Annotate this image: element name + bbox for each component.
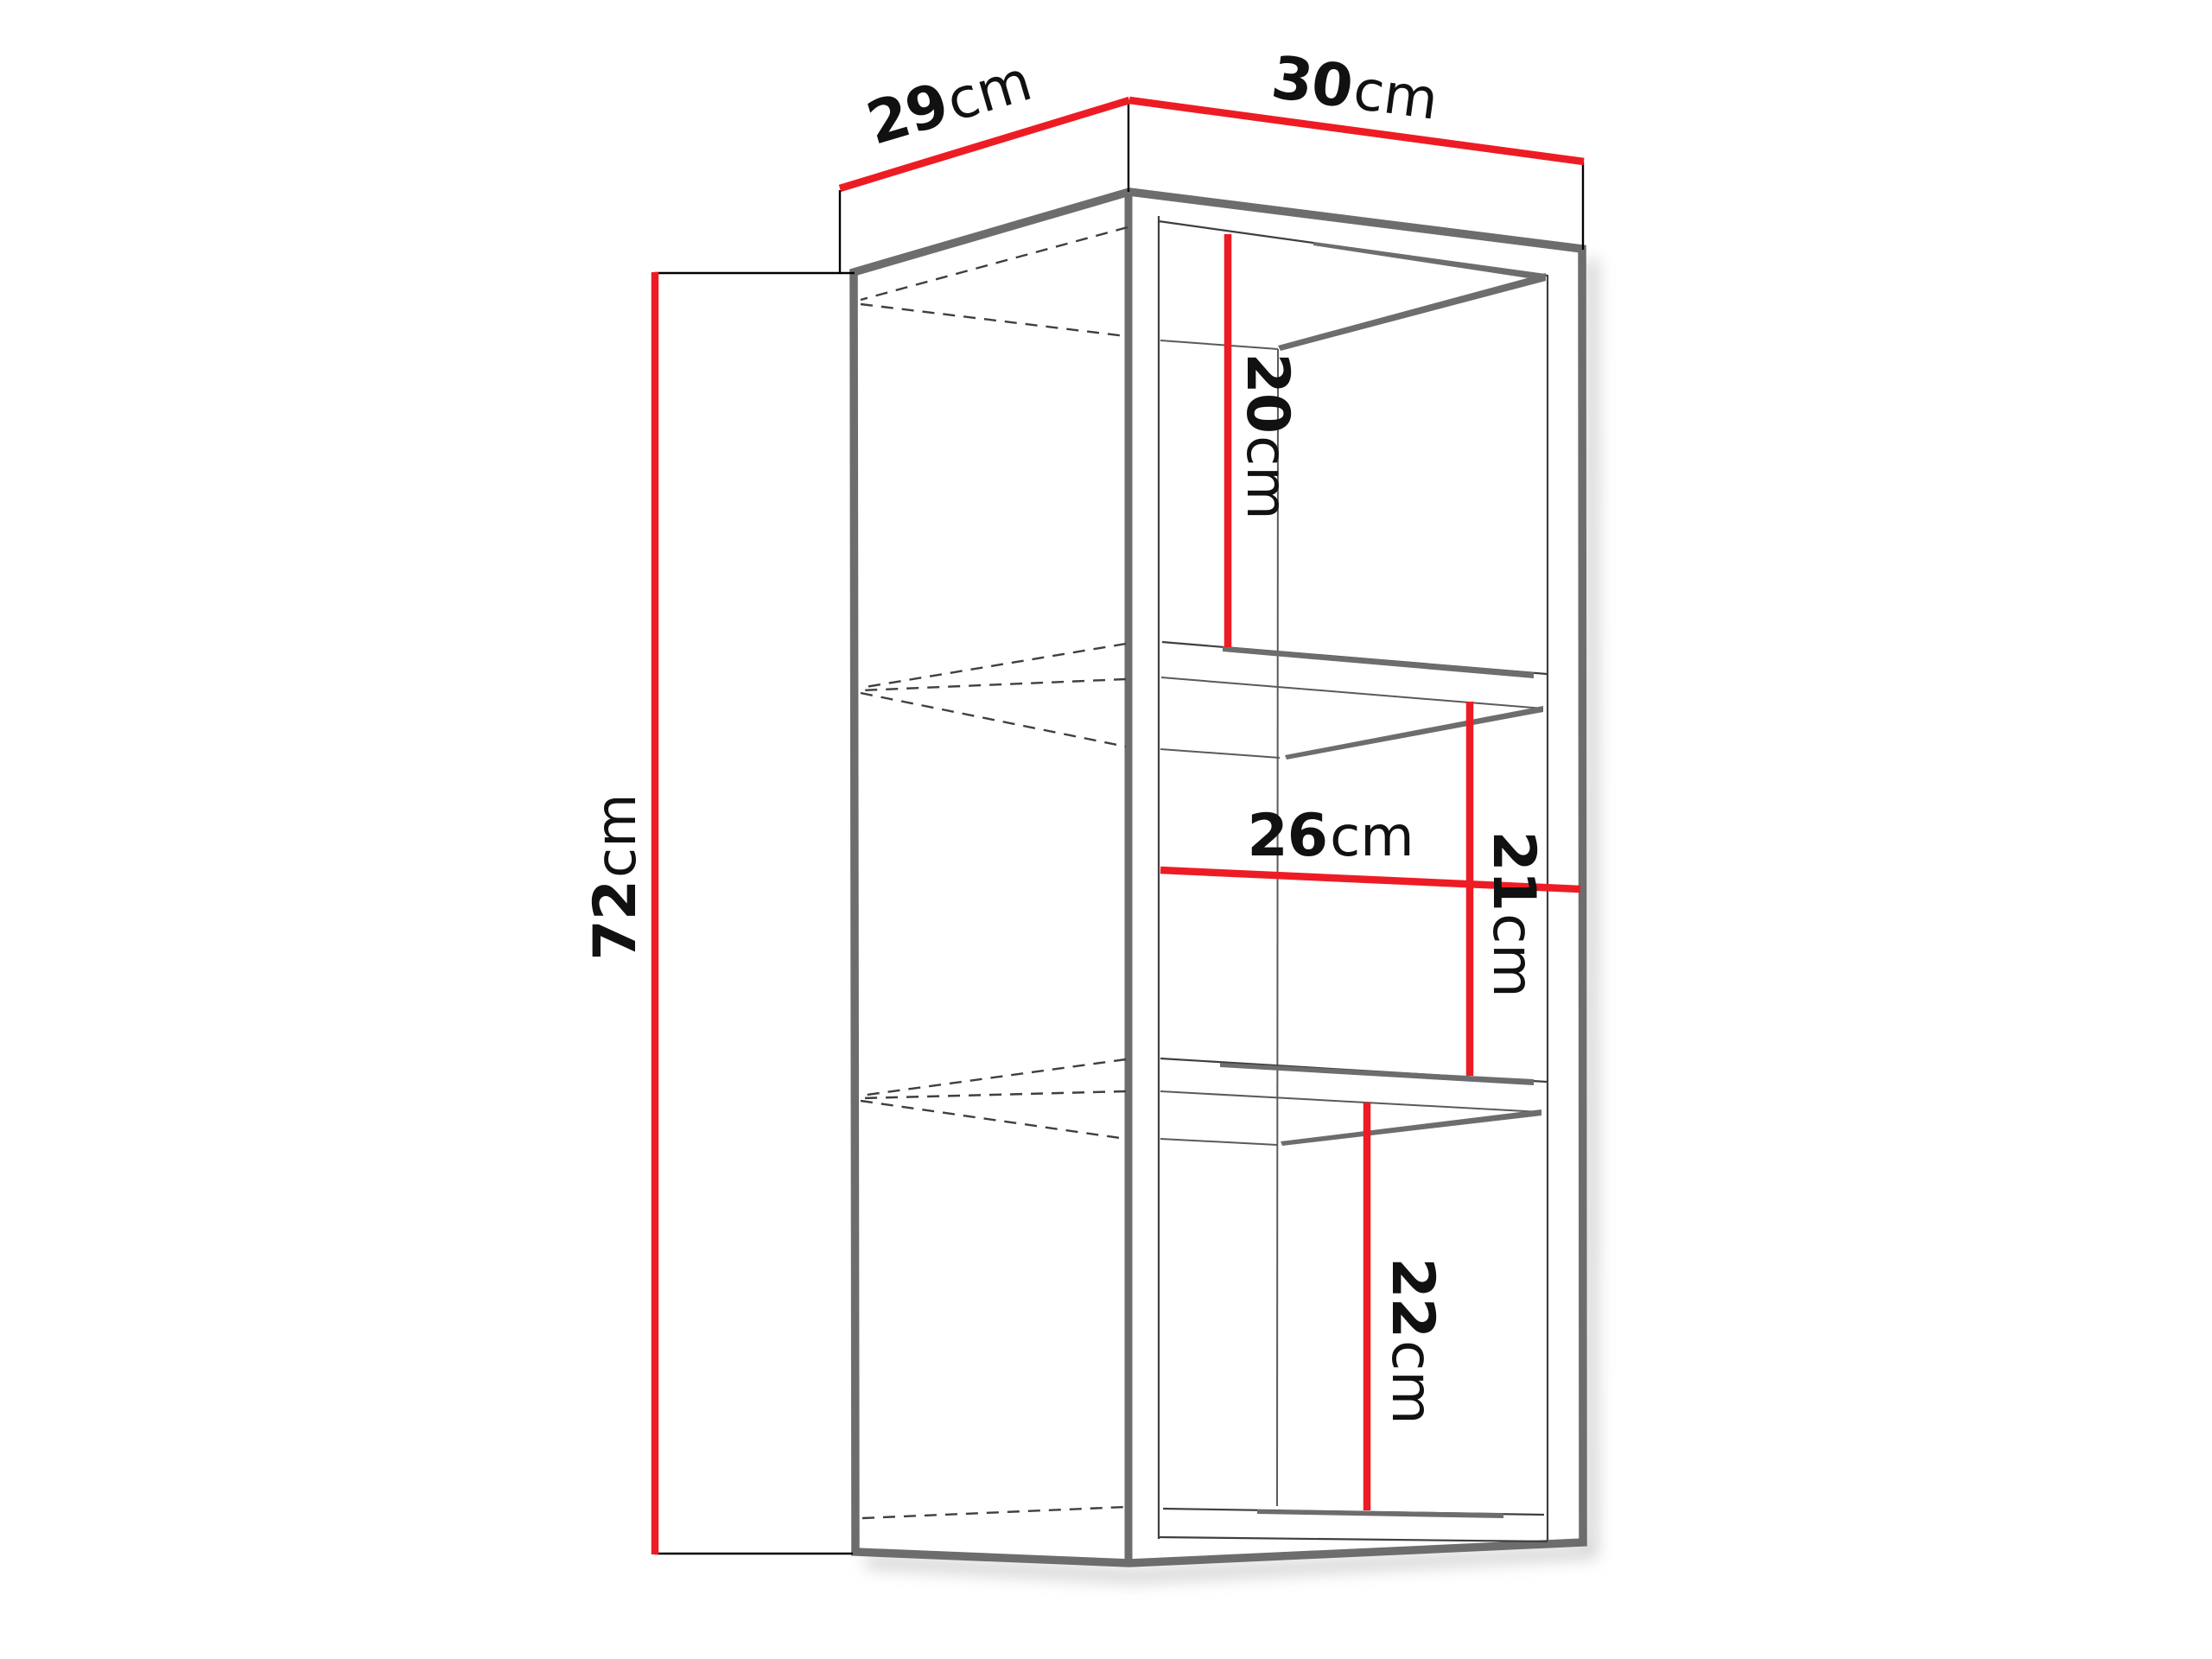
width-value: 30 [1268,44,1356,123]
width-unit: cm [1350,58,1442,132]
top-compartment-label: 20cm [1233,353,1301,519]
cabinet-outer-outline [854,192,1583,1563]
bottom-compartment-value: 22 [1378,1257,1446,1338]
middle-compartment-value: 21 [1479,830,1548,911]
height-value: 72 [582,880,650,961]
middle-compartment-label: 21cm [1479,830,1548,997]
diagram-canvas: 29cm 30cm 72cm 20cm 26cm 21cm 22cm [0,0,2212,1659]
depth-label: 29cm [860,46,1039,159]
bottom-compartment-label: 22cm [1378,1257,1446,1424]
interior-back-corner-edge [1277,349,1278,1506]
middle-compartment-unit: cm [1480,913,1544,998]
interior-width-value: 26 [1247,802,1327,870]
height-label: 72cm [582,793,650,960]
interior-width-unit: cm [1330,805,1414,869]
cabinet-dimension-diagram: 29cm 30cm 72cm 20cm 26cm 21cm 22cm [0,0,2212,1659]
top-compartment-unit: cm [1234,435,1298,520]
bottom-compartment-unit: cm [1379,1340,1443,1425]
interior-width-label: 26cm [1247,802,1414,870]
height-unit: cm [585,793,649,878]
depth-value: 29 [860,71,956,159]
cabinet-drawing [854,192,1583,1563]
depth-unit: cm [940,49,1039,135]
top-compartment-value: 20 [1233,353,1301,433]
